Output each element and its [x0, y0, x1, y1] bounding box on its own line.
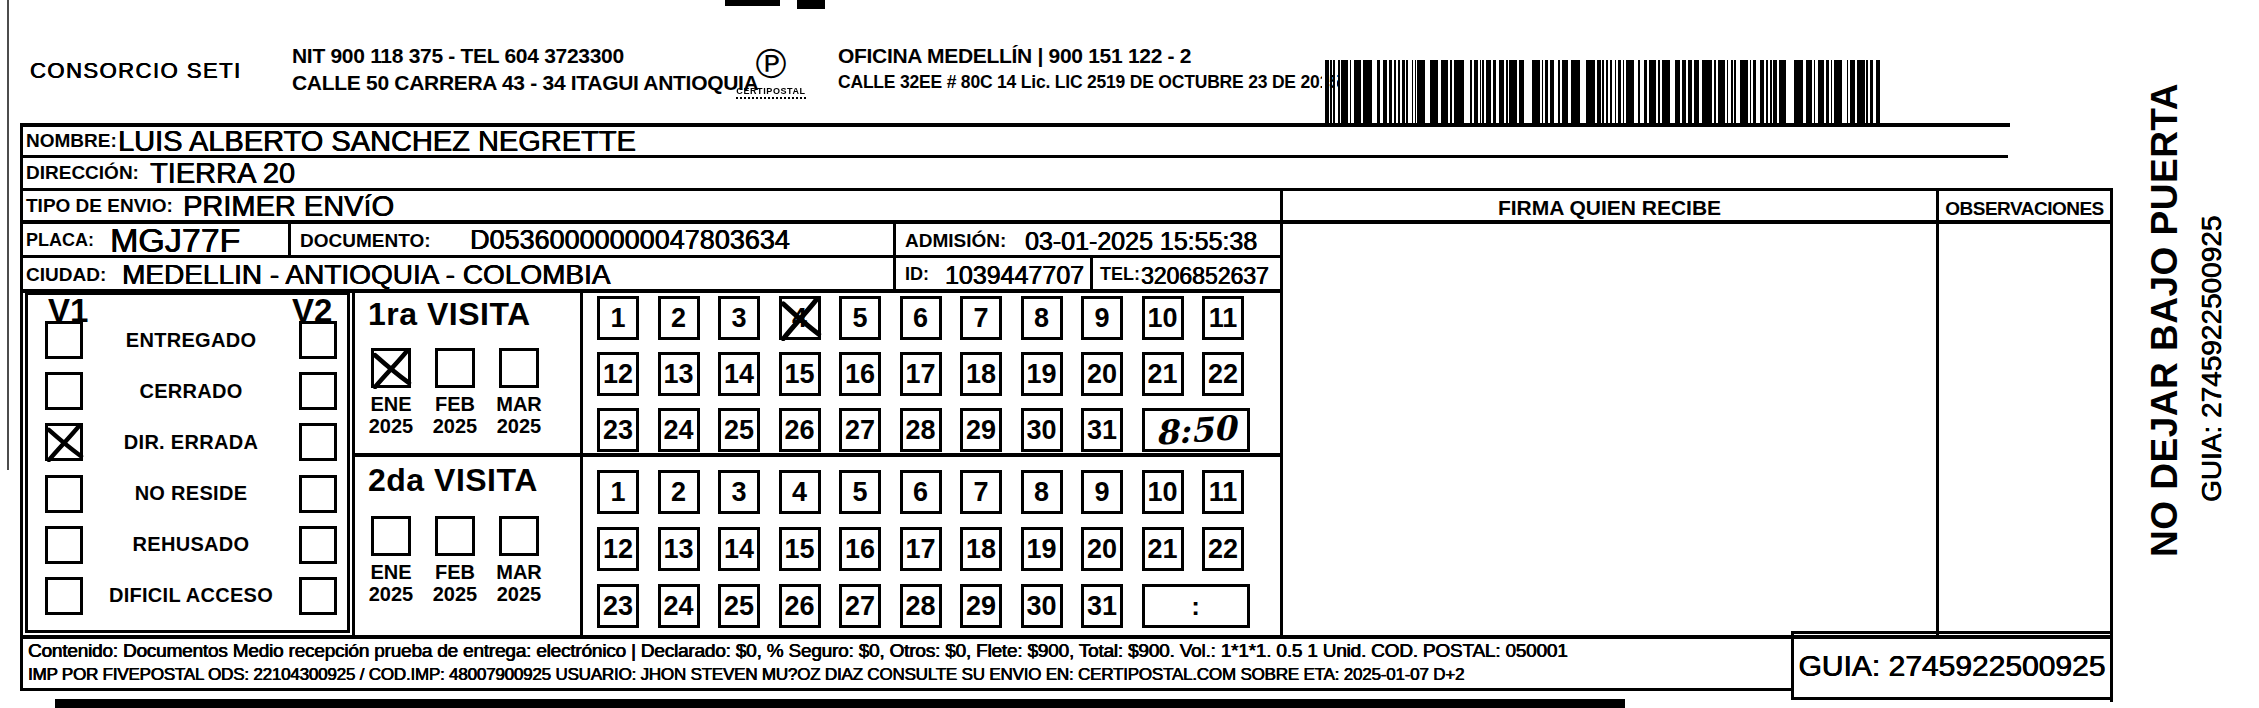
day-box-18: 18	[960, 352, 1002, 396]
certipostal-logo: ℗ CERTIPOSTAL	[736, 42, 806, 99]
day-box-21: 21	[1142, 352, 1184, 396]
time-box: :	[1142, 584, 1250, 628]
day-box-16: 16	[839, 527, 881, 571]
day-number: 17	[905, 534, 935, 565]
day-number: 24	[663, 415, 693, 446]
day-number: 25	[724, 415, 754, 446]
divider-line	[580, 289, 583, 638]
day-box-2: 2	[658, 296, 700, 340]
direccion-value: TIERRA 20	[150, 157, 295, 190]
month-item-mar: MAR2025	[490, 348, 548, 437]
month-item-feb: FEB2025	[426, 516, 484, 605]
day-box-17: 17	[900, 527, 942, 571]
day-number: 21	[1147, 359, 1177, 390]
x-mark-icon	[45, 423, 84, 462]
day-number: 28	[905, 415, 935, 446]
month-item-mar: MAR2025	[490, 516, 548, 605]
id-value: 1039447707	[945, 261, 1084, 290]
day-number: 3	[731, 303, 746, 334]
day-number: 14	[724, 534, 754, 565]
ciudad-value: MEDELLIN - ANTIOQUIA - COLOMBIA	[122, 259, 611, 291]
month-checkbox	[499, 516, 539, 556]
logo-caption: CERTIPOSTAL	[736, 86, 806, 99]
day-number: 26	[784, 415, 814, 446]
day-number: 5	[852, 303, 867, 334]
divider-line	[1280, 188, 1283, 638]
scan-edge-line	[7, 0, 9, 470]
waybill-document: CONSORCIO SETI NIT 900 118 375 - TEL 604…	[0, 0, 2259, 708]
day-box-19: 19	[1021, 352, 1063, 396]
v1-checkbox	[45, 577, 83, 615]
day-number: 15	[784, 534, 814, 565]
day-box-22: 22	[1202, 527, 1244, 571]
day-box-24: 24	[658, 408, 700, 452]
day-number: 1	[610, 303, 625, 334]
status-label: REHUSADO	[83, 533, 299, 556]
day-box-9: 9	[1081, 470, 1123, 514]
day-number: 2	[671, 477, 686, 508]
side-guia-number: GUIA: 2745922500925	[2196, 216, 2228, 502]
v1-checkbox	[45, 372, 83, 410]
day-box-31: 31	[1081, 408, 1123, 452]
status-row: NO RESIDE	[45, 474, 337, 514]
day-number: 13	[663, 359, 693, 390]
day-row: 1234567891011	[597, 470, 1250, 514]
day-box-4: 4	[779, 470, 821, 514]
day-box-2: 2	[658, 470, 700, 514]
visit-1-title: 1ra VISITA	[368, 296, 531, 333]
day-number: 4	[792, 477, 807, 508]
v2-checkbox	[299, 423, 337, 461]
visit-2-title: 2da VISITA	[368, 462, 538, 499]
divider-line	[20, 688, 1791, 691]
day-box-5: 5	[839, 296, 881, 340]
day-number: 24	[663, 591, 693, 622]
month-label: FEB2025	[433, 393, 478, 437]
v1-checkbox	[45, 475, 83, 513]
day-box-13: 13	[658, 527, 700, 571]
month-checkbox	[435, 516, 475, 556]
month-label: ENE2025	[369, 561, 414, 605]
documento-label: DOCUMENTO:	[300, 230, 431, 252]
day-row: 1234567891011	[597, 296, 1250, 340]
day-number: 29	[966, 591, 996, 622]
day-number: 28	[905, 591, 935, 622]
divider-line	[2110, 188, 2113, 702]
firma-quien-recibe-header: FIRMA QUIEN RECIBE	[1283, 196, 1936, 220]
month-item-ene: ENE2025	[362, 348, 420, 437]
ciudad-label: CIUDAD:	[26, 264, 106, 286]
day-box-9: 9	[1081, 296, 1123, 340]
day-number: 5	[852, 477, 867, 508]
time-box: 8:50	[1142, 408, 1250, 452]
guia-number-box: GUIA: 2745922500925	[1791, 631, 2113, 700]
day-box-3: 3	[718, 296, 760, 340]
day-box-14: 14	[718, 527, 760, 571]
v1-checkbox	[45, 423, 83, 461]
status-row: CERRADO	[45, 371, 337, 411]
day-box-8: 8	[1021, 296, 1063, 340]
day-number: 9	[1094, 477, 1109, 508]
day-box-8: 8	[1021, 470, 1063, 514]
company-name: CONSORCIO SETI	[30, 58, 242, 84]
day-box-19: 19	[1021, 527, 1063, 571]
day-number: 14	[724, 359, 754, 390]
day-box-30: 30	[1021, 408, 1063, 452]
month-item-feb: FEB2025	[426, 348, 484, 437]
nombre-label: NOMBRE:	[26, 130, 117, 152]
day-number: 20	[1087, 534, 1117, 565]
day-box-26: 26	[779, 584, 821, 628]
day-number: 7	[973, 477, 988, 508]
day-box-21: 21	[1142, 527, 1184, 571]
day-number: 7	[973, 303, 988, 334]
day-row: 232425262728293031:	[597, 584, 1250, 628]
day-box-28: 28	[900, 408, 942, 452]
day-box-12: 12	[597, 352, 639, 396]
scan-mark	[725, 0, 780, 6]
day-box-4: 4	[779, 296, 821, 340]
day-box-18: 18	[960, 527, 1002, 571]
scan-mark	[797, 0, 825, 9]
month-label: ENE2025	[369, 393, 414, 437]
divider-line	[1090, 255, 1093, 292]
v2-checkbox	[299, 577, 337, 615]
status-row: ENTREGADO	[45, 320, 337, 360]
certipostal-logo-icon: ℗	[736, 42, 806, 86]
day-box-3: 3	[718, 470, 760, 514]
status-label: CERRADO	[83, 380, 299, 403]
day-number: 16	[845, 359, 875, 390]
month-checkbox	[499, 348, 539, 388]
day-number: 20	[1087, 359, 1117, 390]
day-number: 23	[603, 415, 633, 446]
day-number: 4	[792, 303, 807, 334]
day-number: 3	[731, 477, 746, 508]
day-number: 12	[603, 534, 633, 565]
status-label: ENTREGADO	[83, 329, 299, 352]
day-number: 11	[1209, 477, 1238, 508]
visit-1-day-grid: 1234567891011121314151617181920212223242…	[597, 296, 1250, 452]
day-box-15: 15	[779, 527, 821, 571]
day-row: 1213141516171819202122	[597, 352, 1250, 396]
day-number: 2	[671, 303, 686, 334]
status-label: DIFICIL ACCESO	[83, 584, 299, 607]
hq-address-line: CALLE 50 CARRERA 43 - 34 ITAGUI ANTIOQUI…	[292, 71, 758, 95]
day-number: 30	[1026, 591, 1056, 622]
day-box-30: 30	[1021, 584, 1063, 628]
divider-line	[288, 220, 291, 258]
day-number: 10	[1147, 477, 1177, 508]
observaciones-header: OBSERVACIONES	[1939, 198, 2110, 220]
day-box-10: 10	[1142, 470, 1184, 514]
day-box-20: 20	[1081, 527, 1123, 571]
no-dejar-bajo-puerta-warning: NO DEJAR BAJO PUERTA	[2142, 83, 2188, 557]
divider-line	[893, 220, 896, 292]
day-number: 27	[845, 415, 875, 446]
time-value: :	[1191, 591, 1200, 622]
day-number: 21	[1147, 534, 1177, 565]
day-box-29: 29	[960, 408, 1002, 452]
day-number: 6	[913, 477, 928, 508]
day-number: 6	[913, 303, 928, 334]
day-box-15: 15	[779, 352, 821, 396]
day-box-23: 23	[597, 408, 639, 452]
footer-imp-line: IMP POR FIVEPOSTAL ODS: 22104300925 / CO…	[28, 665, 1464, 685]
day-box-16: 16	[839, 352, 881, 396]
day-box-28: 28	[900, 584, 942, 628]
placa-value: MGJ77F	[110, 221, 240, 260]
divider-line	[1936, 188, 1939, 638]
day-number: 26	[784, 591, 814, 622]
month-checkbox	[435, 348, 475, 388]
day-box-11: 11	[1202, 296, 1244, 340]
v2-checkbox	[299, 321, 337, 359]
status-row: DIR. ERRADA	[45, 422, 337, 462]
month-item-ene: ENE2025	[362, 516, 420, 605]
day-box-25: 25	[718, 584, 760, 628]
day-box-6: 6	[900, 296, 942, 340]
tel-label: TEL:	[1100, 264, 1140, 285]
day-number: 10	[1147, 303, 1177, 334]
day-box-17: 17	[900, 352, 942, 396]
admision-value: 03-01-2025 15:55:38	[1025, 227, 1257, 256]
placa-label: PLACA:	[26, 230, 94, 251]
day-box-5: 5	[839, 470, 881, 514]
day-number: 18	[966, 359, 996, 390]
visit-2-months: ENE2025FEB2025MAR2025	[362, 516, 548, 605]
day-number: 11	[1209, 303, 1238, 334]
day-number: 27	[845, 591, 875, 622]
visit-2-day-grid: 1234567891011121314151617181920212223242…	[597, 470, 1250, 628]
day-box-1: 1	[597, 296, 639, 340]
day-number: 22	[1208, 534, 1238, 565]
office-line: OFICINA MEDELLÍN | 900 151 122 - 2	[838, 44, 1191, 68]
day-box-10: 10	[1142, 296, 1184, 340]
visit-1-months: ENE2025FEB2025MAR2025	[362, 348, 548, 437]
day-box-26: 26	[779, 408, 821, 452]
day-box-25: 25	[718, 408, 760, 452]
day-number: 31	[1087, 415, 1117, 446]
v2-checkbox	[299, 475, 337, 513]
v1-checkbox	[45, 321, 83, 359]
tipo-envio-value: PRIMER ENVíO	[183, 190, 394, 223]
x-mark-icon	[371, 348, 412, 389]
day-number: 19	[1026, 534, 1056, 565]
divider-line	[20, 123, 23, 691]
day-box-31: 31	[1081, 584, 1123, 628]
tipo-envio-label: TIPO DE ENVIO:	[26, 195, 173, 217]
day-box-12: 12	[597, 527, 639, 571]
day-box-22: 22	[1202, 352, 1244, 396]
day-number: 18	[966, 534, 996, 565]
id-label: ID:	[905, 264, 929, 285]
day-number: 9	[1094, 303, 1109, 334]
day-box-27: 27	[839, 584, 881, 628]
v2-checkbox	[299, 526, 337, 564]
day-box-20: 20	[1081, 352, 1123, 396]
day-number: 30	[1026, 415, 1056, 446]
day-box-27: 27	[839, 408, 881, 452]
status-label: NO RESIDE	[83, 482, 299, 505]
day-box-1: 1	[597, 470, 639, 514]
day-number: 31	[1087, 591, 1117, 622]
day-box-23: 23	[597, 584, 639, 628]
month-checkbox	[371, 516, 411, 556]
day-number: 15	[784, 359, 814, 390]
month-label: FEB2025	[433, 561, 478, 605]
divider-line	[352, 289, 355, 638]
v2-checkbox	[299, 372, 337, 410]
status-options: ENTREGADOCERRADODIR. ERRADANO RESIDEREHU…	[45, 320, 337, 616]
month-checkbox	[371, 348, 411, 388]
day-number: 8	[1034, 477, 1049, 508]
day-number: 1	[610, 477, 625, 508]
month-label: MAR2025	[496, 393, 542, 437]
day-number: 8	[1034, 303, 1049, 334]
divider-line	[352, 453, 1282, 457]
nit-phone-line: NIT 900 118 375 - TEL 604 3723300	[292, 44, 624, 68]
day-box-29: 29	[960, 584, 1002, 628]
day-row: 1213141516171819202122	[597, 527, 1250, 571]
footer-contents-line: Contenido: Documentos Medio recepción pr…	[28, 640, 1568, 662]
day-number: 25	[724, 591, 754, 622]
admision-label: ADMISIÓN:	[905, 230, 1006, 252]
status-row: REHUSADO	[45, 525, 337, 565]
day-box-6: 6	[900, 470, 942, 514]
day-box-13: 13	[658, 352, 700, 396]
day-number: 13	[663, 534, 693, 565]
tel-value: 3206852637	[1141, 263, 1269, 290]
day-number: 17	[905, 359, 935, 390]
day-number: 23	[603, 591, 633, 622]
documento-value: D05360000000047803634	[470, 225, 790, 256]
direccion-label: DIRECCIÓN:	[26, 162, 139, 184]
day-box-7: 7	[960, 296, 1002, 340]
day-number: 12	[603, 359, 633, 390]
day-number: 19	[1026, 359, 1056, 390]
nombre-value: LUIS ALBERTO SANCHEZ NEGRETTE	[118, 125, 636, 158]
office-address-line: CALLE 32EE # 80C 14 Lic. LIC 2519 DE OCT…	[838, 72, 1339, 93]
day-number: 22	[1208, 359, 1238, 390]
day-number: 16	[845, 534, 875, 565]
month-label: MAR2025	[496, 561, 542, 605]
day-box-14: 14	[718, 352, 760, 396]
time-value: 8:50	[1154, 408, 1238, 453]
status-row: DIFICIL ACCESO	[45, 576, 337, 616]
status-label: DIR. ERRADA	[83, 431, 299, 454]
day-row: 2324252627282930318:50	[597, 408, 1250, 452]
scan-bottom-bar	[55, 699, 1625, 708]
day-number: 29	[966, 415, 996, 446]
day-box-11: 11	[1202, 470, 1244, 514]
day-box-24: 24	[658, 584, 700, 628]
v1-checkbox	[45, 526, 83, 564]
barcode	[1322, 60, 1880, 125]
day-box-7: 7	[960, 470, 1002, 514]
